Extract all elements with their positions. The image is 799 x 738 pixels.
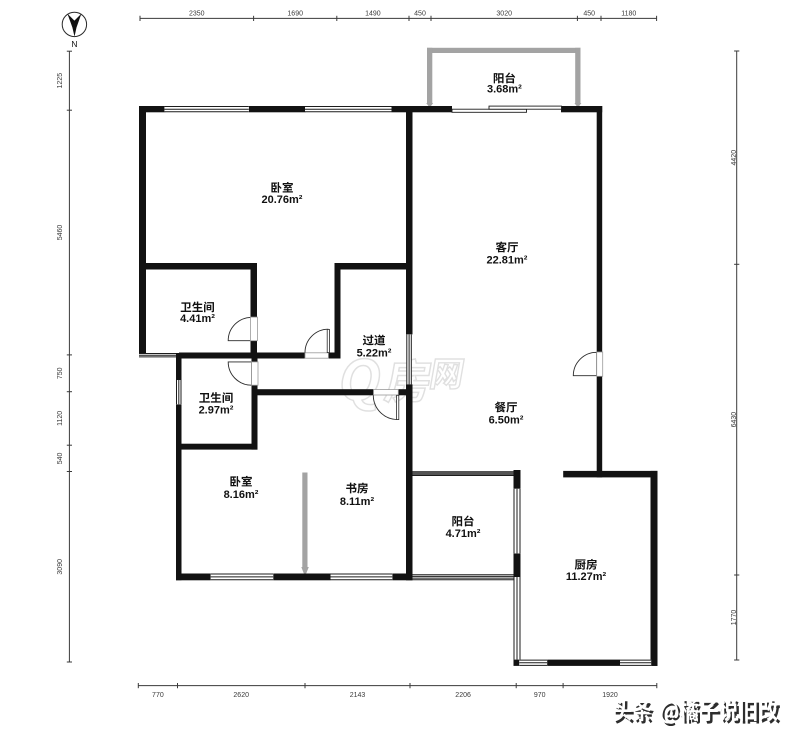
svg-text:8.11m²: 8.11m² [340,496,375,508]
svg-text:N: N [71,39,77,49]
svg-text:2143: 2143 [350,692,366,699]
svg-text:1180: 1180 [621,10,636,17]
svg-text:2206: 2206 [455,692,471,699]
svg-text:4.71m²: 4.71m² [446,528,481,540]
svg-text:450: 450 [583,10,595,17]
svg-text:3090: 3090 [57,559,64,575]
svg-text:1225: 1225 [57,73,64,89]
svg-text:970: 970 [534,692,546,699]
svg-text:3020: 3020 [496,10,512,17]
svg-text:750: 750 [57,367,64,379]
svg-text:5.22m²: 5.22m² [357,348,392,360]
svg-text:1920: 1920 [602,692,618,699]
svg-text:6430: 6430 [731,412,738,428]
svg-text:5460: 5460 [57,225,64,241]
svg-text:1490: 1490 [365,10,381,17]
svg-text:4420: 4420 [731,150,738,166]
svg-text:540: 540 [57,452,64,464]
svg-text:1690: 1690 [287,10,303,17]
svg-text:4.41m²: 4.41m² [180,313,215,325]
svg-text:770: 770 [152,692,164,699]
svg-text:8.16m²: 8.16m² [224,489,259,501]
svg-text:1120: 1120 [57,411,64,426]
svg-text:6.50m²: 6.50m² [489,414,524,426]
svg-text:450: 450 [414,10,426,17]
svg-text:22.81m²: 22.81m² [487,255,528,267]
svg-text:3.68m²: 3.68m² [487,84,522,96]
svg-text:2620: 2620 [233,692,249,699]
svg-text:1770: 1770 [731,610,738,626]
svg-text:20.76m²: 20.76m² [262,194,303,206]
svg-text:2350: 2350 [189,10,205,17]
svg-text:11.27m²: 11.27m² [566,571,607,583]
svg-text:2.97m²: 2.97m² [199,404,234,416]
